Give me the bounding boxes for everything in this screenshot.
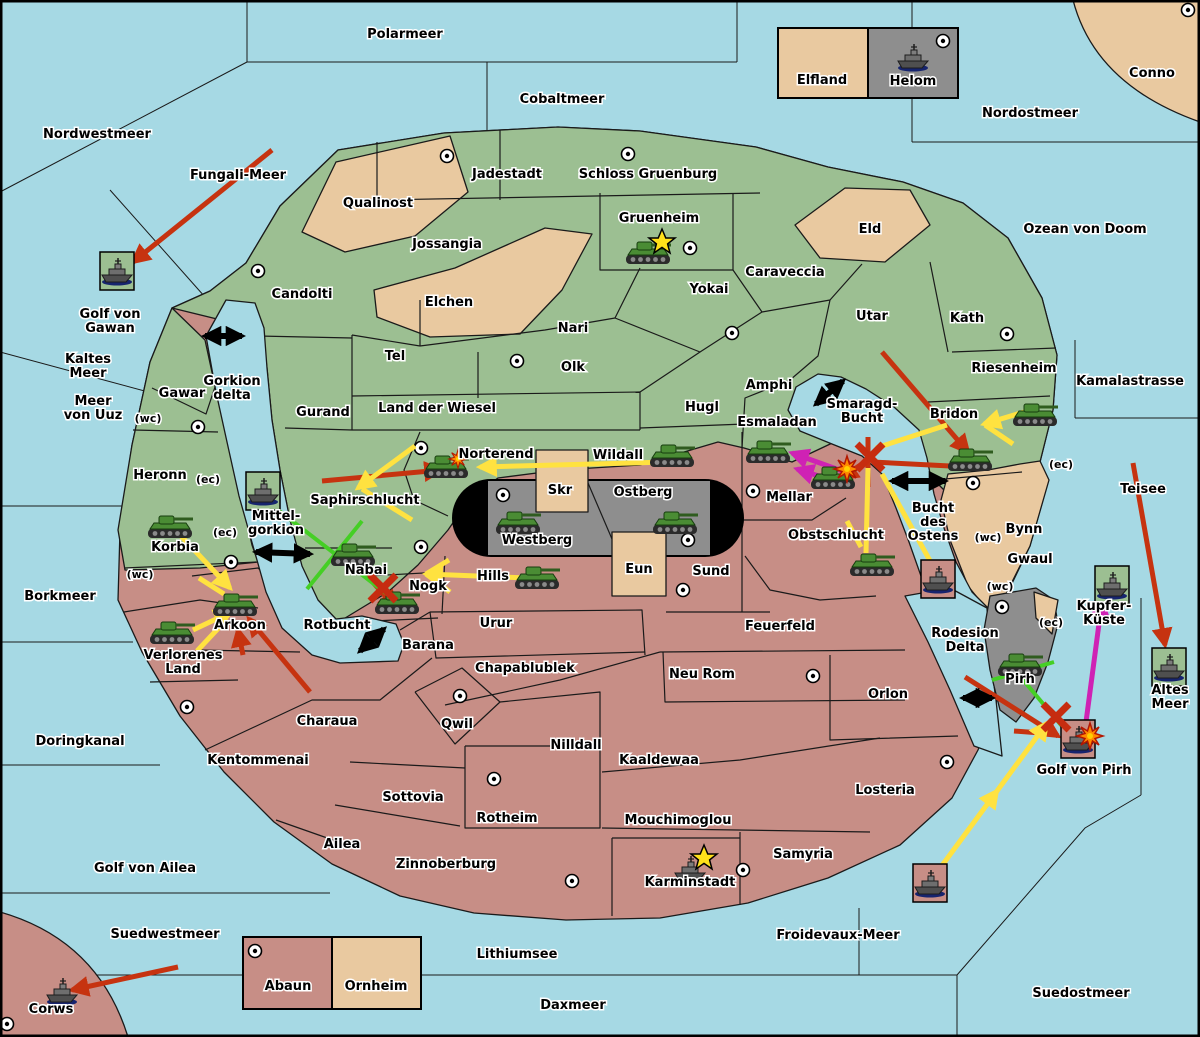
region-label-pirh: Pirh	[1005, 672, 1035, 687]
supply-center-dot	[511, 355, 524, 368]
region-label-yokai: Yokai	[688, 282, 728, 297]
game-map: PolarmeerCobaltmeerNordostmeerNordwestme…	[0, 0, 1200, 1037]
region-label-nari: Nari	[558, 321, 589, 336]
region-label-hills: Hills	[477, 569, 509, 584]
sea-label-suedwestmeer: Suedwestmeer	[110, 927, 220, 942]
region-label-nabai: Nabai	[345, 563, 387, 578]
region-label-obstschlucht: Obstschlucht	[788, 528, 884, 543]
coast-label-wc: (wc)	[987, 580, 1014, 593]
supply-center-dot	[497, 489, 510, 502]
supply-center-dot	[225, 556, 238, 569]
sea-label-teisee: Teisee	[1120, 482, 1166, 497]
central-mountain-range	[452, 479, 744, 557]
legend-cell-ornheim	[332, 937, 421, 1009]
region-label-rotheim: Rotheim	[476, 811, 537, 826]
region-label-abaun: Abaun	[265, 979, 312, 994]
region-label-samyria: Samyria	[773, 847, 833, 862]
supply-center-dot	[566, 875, 579, 888]
region-label-riesenheim: Riesenheim	[971, 361, 1056, 376]
coast-label-ec: (ec)	[213, 526, 237, 539]
sea-label-altes-meer: AltesMeer	[1151, 683, 1189, 712]
sea-label-golf-von-pirh: Golf von Pirh	[1036, 763, 1131, 778]
region-label-kaaldewaa: Kaaldewaa	[619, 753, 699, 768]
region-label-hugl: Hugl	[685, 400, 719, 415]
region-label-caraveccia: Caraveccia	[745, 265, 824, 280]
region-label-kentommenai: Kentommenai	[207, 753, 308, 768]
ship-unit[interactable]	[921, 560, 955, 598]
region-label-land-der-wiesel: Land der Wiesel	[378, 401, 496, 416]
region-label-elchen: Elchen	[425, 295, 473, 310]
ship-unit[interactable]	[246, 472, 280, 510]
supply-center-dot	[747, 485, 760, 498]
region-label-schloss-gruenburg: Schloss Gruenburg	[579, 167, 717, 182]
supply-center-dot	[488, 773, 501, 786]
supply-center-dot	[441, 150, 454, 163]
region-label-nilldall: Nilldall	[550, 738, 601, 753]
burst-marker	[1077, 723, 1103, 749]
region-label-arkoon: Arkoon	[214, 618, 266, 633]
region-label-mellar: Mellar	[766, 490, 812, 505]
region-label-sottovia: Sottovia	[382, 790, 443, 805]
sea-label-kaltes-meer: KaltesMeer	[65, 352, 111, 381]
region-label-jadestadt: Jadestadt	[471, 167, 542, 182]
supply-center-dot	[941, 756, 954, 769]
region-label-tel: Tel	[385, 349, 405, 364]
region-label-eld: Eld	[859, 222, 882, 237]
region-label-westberg: Westberg	[502, 533, 572, 548]
sea-label-kupfer-küste: Kupfer-Küste	[1077, 599, 1132, 628]
region-label-ostberg: Ostberg	[614, 485, 673, 500]
sea-label-golf-von-gawan: Golf vonGawan	[80, 307, 141, 336]
game-map-stage: PolarmeerCobaltmeerNordostmeerNordwestme…	[0, 0, 1200, 1037]
region-label-qualinost: Qualinost	[343, 196, 413, 211]
region-label-jossangia: Jossangia	[411, 237, 482, 252]
sea-label-polarmeer: Polarmeer	[367, 27, 443, 42]
ship-unit[interactable]	[100, 252, 134, 290]
red-order-arrow	[1014, 731, 1054, 734]
region-label-gurand: Gurand	[296, 405, 350, 420]
region-label-eun: Eun	[625, 562, 652, 577]
region-label-saphirschlucht: Saphirschlucht	[310, 493, 419, 508]
region-label-korbia: Korbia	[151, 540, 199, 555]
ship-unit[interactable]	[913, 864, 947, 902]
ship-unit[interactable]	[1152, 648, 1186, 686]
supply-center-dot	[1182, 4, 1195, 17]
region-label-neu-rom: Neu Rom	[669, 667, 735, 682]
region-label-conno: Conno	[1129, 66, 1175, 81]
region-label-barana: Barana	[402, 638, 454, 653]
coast-label-wc: (wc)	[127, 568, 154, 581]
supply-center-dot	[684, 242, 697, 255]
region-label-losteria: Losteria	[855, 783, 915, 798]
region-label-gawar: Gawar	[159, 386, 206, 401]
region-label-bynn: Bynn	[1006, 522, 1043, 537]
supply-center-dot	[967, 477, 980, 490]
supply-center-dot	[252, 265, 265, 278]
sea-label-mittel-gorkion: Mittel-gorkion	[248, 509, 304, 538]
sea-label-doringkanal: Doringkanal	[35, 734, 124, 749]
region-label-gwaul: Gwaul	[1007, 552, 1052, 567]
coast-label-wc: (wc)	[135, 412, 162, 425]
region-label-heronn: Heronn	[133, 468, 187, 483]
region-label-skr: Skr	[548, 483, 573, 498]
sea-label-kamalastrasse: Kamalastrasse	[1076, 374, 1184, 389]
sea-label-nordostmeer: Nordostmeer	[982, 106, 1079, 121]
region-label-urur: Urur	[480, 616, 513, 631]
supply-center-dot	[726, 327, 739, 340]
region-label-sund: Sund	[692, 564, 729, 579]
sea-label-cobaltmeer: Cobaltmeer	[520, 92, 605, 107]
region-label-zinnoberburg: Zinnoberburg	[396, 857, 496, 872]
coast-label-ec: (ec)	[196, 473, 220, 486]
sea-label-ozean-von-doom: Ozean von Doom	[1023, 222, 1146, 237]
supply-center-dot	[682, 534, 695, 547]
region-label-feuerfeld: Feuerfeld	[745, 619, 815, 634]
region-label-kath: Kath	[950, 311, 984, 326]
region-label-elfland: Elfland	[797, 73, 847, 88]
region-label-corws: Corws	[29, 1002, 74, 1017]
legend-box-bottom	[243, 937, 421, 1009]
region-label-helom: Helom	[890, 74, 937, 89]
supply-center-dot	[737, 864, 750, 877]
region-label-bridon: Bridon	[930, 407, 978, 422]
region-label-esmaladan: Esmaladan	[737, 415, 817, 430]
region-label-karminstadt: Karminstadt	[645, 875, 736, 890]
sea-label-golf-von-ailea: Golf von Ailea	[94, 861, 196, 876]
region-label-qwil: Qwil	[441, 717, 473, 732]
supply-center-dot	[454, 690, 467, 703]
coast-label-ec: (ec)	[1049, 458, 1073, 471]
strait-link-arrow	[256, 552, 310, 554]
supply-center-dot	[415, 541, 428, 554]
region-label-amphi: Amphi	[746, 378, 793, 393]
region-label-norterend: Norterend	[458, 447, 533, 462]
sea-label-bork-meer: Bork​meer	[24, 589, 96, 604]
supply-center-dot	[249, 945, 262, 958]
sea-label-froidevaux-meer: Froidevaux-Meer	[776, 928, 900, 943]
supply-center-dot	[622, 148, 635, 161]
sea-label-fungali-meer: Fungali-Meer	[190, 168, 287, 183]
supply-center-dot	[677, 584, 690, 597]
supply-center-dot	[181, 701, 194, 714]
sea-label-nordwestmeer: Nordwestmeer	[43, 127, 151, 142]
region-label-charaua: Charaua	[297, 714, 358, 729]
sea-label-rotbucht: Rotbucht	[304, 618, 371, 633]
region-label-gruenheim: Gruenheim	[619, 211, 699, 226]
supply-center-dot	[937, 35, 950, 48]
coast-label-ec: (ec)	[1039, 616, 1063, 629]
region-label-olk: Olk	[561, 360, 586, 375]
region-label-wildall: Wildall	[593, 448, 643, 463]
sea-label-lithiumsee: Lithiumsee	[477, 947, 558, 962]
coast-label-wc: (wc)	[975, 531, 1002, 544]
sea-label-daxmeer: Daxmeer	[540, 998, 606, 1013]
region-label-chapablublek: Chapablublek	[475, 661, 575, 676]
supply-center-dot	[807, 670, 820, 683]
region-label-ornheim: Ornheim	[345, 979, 408, 994]
supply-center-dot	[1001, 328, 1014, 341]
sea-label-suedostmeer: Suedostmeer	[1032, 986, 1130, 1001]
supply-center-dot	[192, 421, 205, 434]
territory-skr	[536, 450, 588, 512]
region-label-candolti: Candolti	[272, 287, 333, 302]
region-label-mouchimoglou: Mouchimoglou	[625, 813, 732, 828]
region-label-orlon: Orlon	[868, 687, 908, 702]
region-label-ailea: Ailea	[324, 837, 361, 852]
supply-center-dot	[996, 601, 1009, 614]
region-label-utar: Utar	[856, 309, 889, 324]
region-label-nogk: Nogk	[409, 579, 447, 594]
